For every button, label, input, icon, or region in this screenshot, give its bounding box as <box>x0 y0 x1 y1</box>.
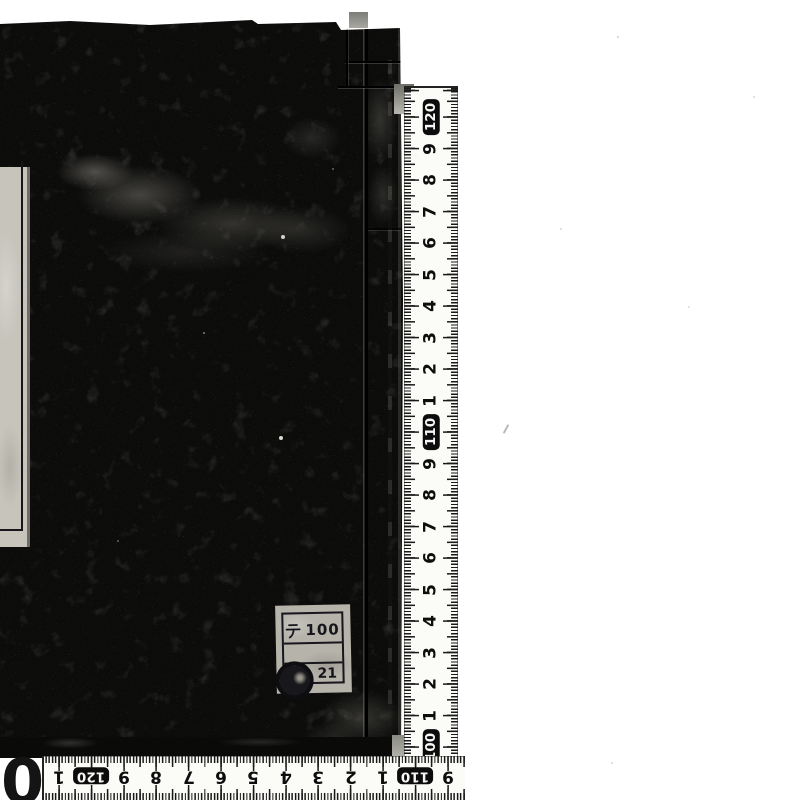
call-number-label: 100 21 <box>275 604 352 694</box>
ruler-label: 3 <box>423 332 440 344</box>
dust-speck <box>203 332 205 334</box>
horizontal-scale-ruler: 11209876543211109 <box>42 756 465 800</box>
title-slip-edge <box>27 167 30 547</box>
cover-crack <box>368 228 401 230</box>
ruler-ticks <box>44 785 465 800</box>
binding-seam <box>363 28 368 757</box>
ruler-label: 4 <box>423 300 440 312</box>
ruler-label: 9 <box>442 768 454 785</box>
dust-speck <box>332 168 334 170</box>
label-row-callnumber: 100 <box>283 617 341 642</box>
ruler-ticks <box>404 88 419 776</box>
cover-crack <box>338 86 402 88</box>
dust-speck <box>688 306 690 308</box>
ruler-label: 1 <box>53 768 65 785</box>
dust-speck <box>611 762 613 764</box>
scan-canvas: 100 21 120987654321110987654321100 11209… <box>0 0 800 800</box>
ruler-label: 2 <box>423 678 440 690</box>
ruler-label: 7 <box>423 521 440 533</box>
title-slip <box>0 167 30 547</box>
cover-crack <box>345 61 402 63</box>
stitching-marks <box>388 60 392 727</box>
ruler-label: 6 <box>423 552 440 564</box>
right-edge-highlight <box>398 28 401 757</box>
label-border: 100 21 <box>281 611 344 684</box>
ruler-label: 6 <box>215 768 227 785</box>
ruler-label: 120 <box>73 768 109 785</box>
ruler-label: 6 <box>423 237 440 249</box>
ruler-label: 3 <box>312 768 324 785</box>
dust-speck <box>281 235 285 239</box>
title-slip-frame <box>0 161 23 531</box>
ruler-label: 8 <box>423 489 440 501</box>
ruler-label: 120 <box>423 99 440 135</box>
book-cover: 100 21 <box>0 0 403 757</box>
ruler-label: 2 <box>423 363 440 375</box>
dust-speck <box>560 228 562 230</box>
ruler-label: 8 <box>423 174 440 186</box>
dust-speck <box>117 540 119 542</box>
ruler-label: 110 <box>423 414 440 450</box>
ruler-label: 7 <box>183 768 195 785</box>
corner-scale-digit: 0 <box>1 751 42 800</box>
vertical-scale-ruler: 120987654321110987654321100 <box>404 86 458 776</box>
ruler-label: 9 <box>423 143 440 155</box>
ruler-label: 3 <box>423 647 440 659</box>
scratch-mark <box>503 424 509 434</box>
ruler-label: 9 <box>118 768 130 785</box>
dust-speck <box>617 36 619 38</box>
volume-number: 21 <box>317 666 337 682</box>
ruler-label: 110 <box>397 768 433 785</box>
mounting-tab <box>349 12 368 28</box>
dust-speck <box>279 436 283 440</box>
ruler-label: 1 <box>423 395 440 407</box>
cover-crack <box>346 26 348 86</box>
ruler-label: 9 <box>423 458 440 470</box>
ruler-ticks <box>443 88 458 776</box>
book-bottom-edge <box>0 737 434 758</box>
ruler-label: 7 <box>423 206 440 218</box>
ruler-label: 5 <box>423 584 440 596</box>
ruler-label: 2 <box>345 768 357 785</box>
ruler-label: 1 <box>377 768 389 785</box>
label-divider <box>284 641 342 644</box>
ruler-label: 8 <box>150 768 162 785</box>
dust-speck <box>753 96 755 98</box>
ruler-label: 5 <box>423 269 440 281</box>
ruler-label: 5 <box>247 768 259 785</box>
call-number: 100 <box>305 620 340 639</box>
ruler-label: 4 <box>280 768 292 785</box>
katakana-te-glyph <box>285 622 300 638</box>
ruler-label: 1 <box>423 710 440 722</box>
ruler-label: 4 <box>423 615 440 627</box>
